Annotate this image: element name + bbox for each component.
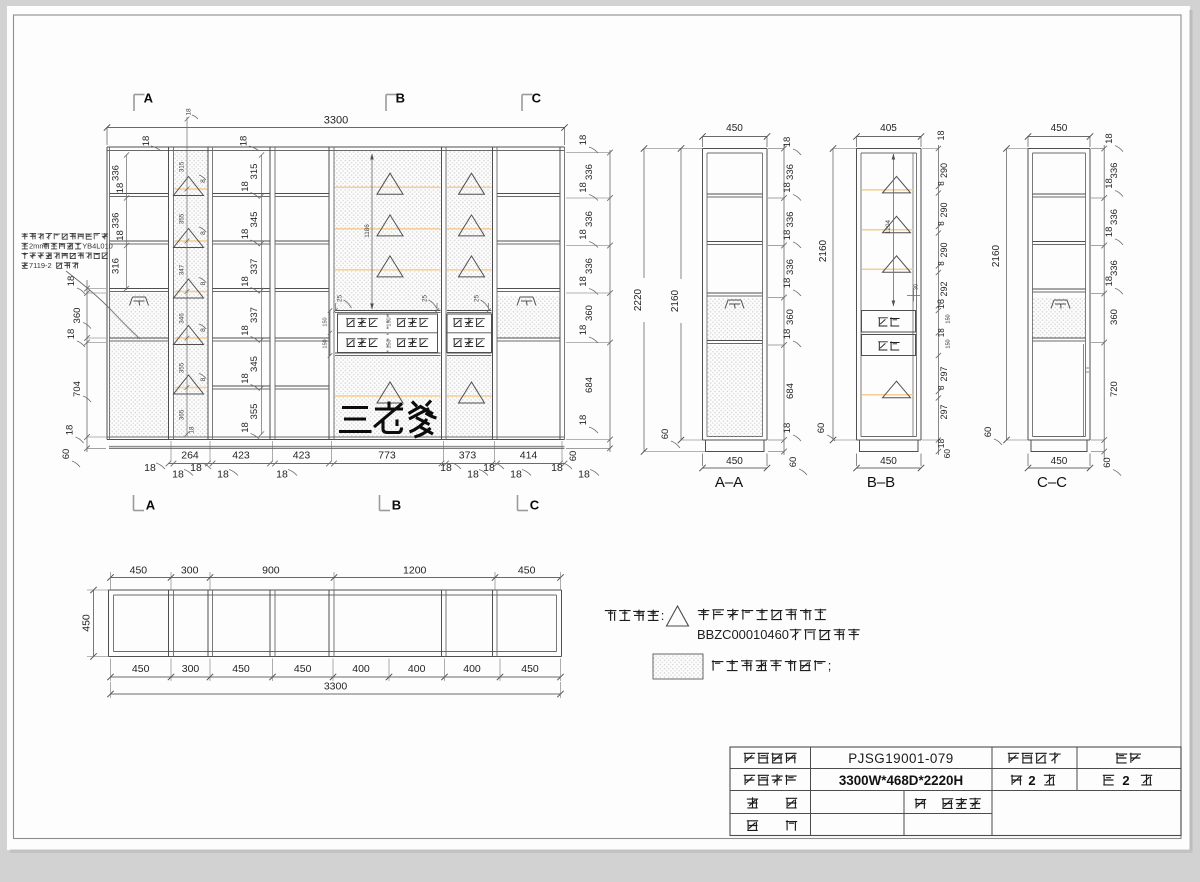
svg-text:18: 18	[578, 229, 589, 240]
svg-text:336: 336	[785, 212, 796, 228]
svg-text:2: 2	[1122, 773, 1129, 788]
svg-text:18: 18	[782, 137, 793, 148]
svg-text:3300: 3300	[324, 115, 348, 127]
svg-text:720: 720	[1109, 381, 1120, 397]
svg-text:423: 423	[232, 450, 250, 462]
svg-text:18: 18	[239, 136, 250, 147]
svg-text:60: 60	[568, 451, 579, 462]
svg-text:18: 18	[144, 462, 156, 474]
svg-text:8: 8	[937, 181, 946, 186]
svg-text:8: 8	[200, 377, 207, 381]
svg-text:450: 450	[1051, 456, 1068, 467]
svg-text:30: 30	[914, 284, 920, 290]
svg-text:1204: 1204	[885, 220, 892, 235]
svg-text:8: 8	[937, 385, 946, 390]
svg-text:773: 773	[378, 450, 396, 462]
svg-text:450: 450	[294, 663, 312, 675]
svg-text:60: 60	[1102, 457, 1113, 468]
svg-text:290: 290	[939, 242, 949, 257]
svg-text:18: 18	[186, 108, 193, 116]
svg-text:8: 8	[200, 231, 207, 235]
svg-text:18: 18	[578, 415, 589, 426]
svg-text:60: 60	[788, 457, 799, 468]
svg-text:400: 400	[463, 663, 481, 675]
svg-text:336: 336	[1109, 209, 1120, 225]
svg-text:18: 18	[936, 130, 946, 140]
svg-text:18: 18	[190, 462, 202, 474]
svg-text:360: 360	[1109, 309, 1120, 325]
svg-text:8: 8	[937, 261, 946, 266]
svg-text:336: 336	[1109, 163, 1120, 179]
svg-text:450: 450	[132, 663, 150, 675]
svg-text:450: 450	[81, 614, 93, 632]
svg-text:18: 18	[782, 278, 793, 289]
svg-text:704: 704	[72, 381, 83, 397]
svg-text:18: 18	[172, 469, 184, 481]
svg-text:60: 60	[942, 449, 952, 459]
svg-text:25: 25	[474, 295, 481, 303]
svg-text:336: 336	[584, 164, 595, 180]
svg-text:315: 315	[249, 164, 260, 180]
svg-text:A: A	[146, 498, 156, 513]
svg-text:YB4L010: YB4L010	[82, 242, 113, 251]
svg-text:18: 18	[240, 422, 251, 433]
svg-text:B–B: B–B	[867, 474, 895, 491]
svg-text:290: 290	[939, 202, 949, 217]
svg-text:336: 336	[785, 164, 796, 180]
svg-text:18: 18	[66, 329, 77, 340]
svg-text:355: 355	[249, 404, 260, 420]
svg-text:2160: 2160	[991, 244, 1002, 267]
svg-text:405: 405	[880, 123, 897, 134]
svg-text:18: 18	[240, 181, 251, 192]
svg-text:25: 25	[422, 295, 429, 303]
svg-text:2160: 2160	[670, 289, 681, 312]
svg-text:345: 345	[249, 212, 260, 228]
svg-text:150: 150	[946, 314, 952, 323]
svg-text:450: 450	[232, 663, 250, 675]
svg-text:347: 347	[179, 264, 186, 275]
svg-text:18: 18	[141, 136, 152, 147]
svg-text:450: 450	[880, 456, 897, 467]
svg-text:300: 300	[181, 565, 199, 577]
svg-text:414: 414	[520, 450, 538, 462]
svg-text:337: 337	[249, 307, 260, 323]
svg-text:25: 25	[337, 295, 344, 303]
svg-text:360: 360	[72, 308, 83, 324]
svg-text:60: 60	[660, 429, 671, 440]
svg-text:2mm: 2mm	[29, 242, 46, 251]
svg-text:150: 150	[387, 339, 393, 348]
svg-text:400: 400	[352, 663, 370, 675]
svg-text:292: 292	[939, 281, 949, 296]
svg-text:60: 60	[61, 449, 72, 460]
svg-text:450: 450	[1051, 123, 1068, 134]
svg-text::: :	[661, 608, 665, 623]
svg-text:PJSG19001-079: PJSG19001-079	[848, 751, 954, 766]
svg-text:2: 2	[1028, 773, 1035, 788]
svg-text:1200: 1200	[403, 565, 427, 577]
svg-text:3300W*468D*2220H: 3300W*468D*2220H	[839, 773, 963, 788]
svg-text:336: 336	[785, 259, 796, 275]
svg-text:18: 18	[65, 425, 76, 436]
svg-text:150: 150	[946, 339, 952, 348]
svg-text:2220: 2220	[633, 288, 644, 311]
svg-text:18: 18	[66, 276, 77, 287]
svg-text:8: 8	[200, 179, 207, 183]
svg-text:18: 18	[578, 135, 589, 146]
svg-text:60: 60	[983, 427, 994, 438]
svg-text:8: 8	[937, 221, 946, 226]
svg-text:18: 18	[1104, 178, 1115, 189]
svg-text:297: 297	[939, 404, 949, 419]
svg-text:B: B	[396, 91, 405, 106]
svg-text:150: 150	[387, 317, 393, 326]
svg-text:290: 290	[939, 163, 949, 178]
svg-text:360: 360	[584, 305, 595, 321]
svg-text:18: 18	[578, 276, 589, 287]
svg-text:18: 18	[1104, 133, 1115, 144]
svg-text:345: 345	[249, 356, 260, 372]
svg-text:18: 18	[782, 329, 793, 340]
svg-text:18: 18	[510, 469, 522, 481]
svg-text:18: 18	[467, 469, 479, 481]
svg-text:336: 336	[584, 258, 595, 274]
svg-text:18: 18	[1104, 276, 1115, 287]
svg-text:18: 18	[276, 469, 288, 481]
svg-text:336: 336	[111, 213, 122, 229]
svg-text:18: 18	[782, 423, 793, 434]
svg-text:336: 336	[111, 165, 122, 181]
svg-text:1186: 1186	[364, 224, 371, 238]
svg-text:684: 684	[584, 377, 595, 393]
svg-text:18: 18	[240, 325, 251, 336]
svg-text:336: 336	[1109, 260, 1120, 276]
svg-text:365: 365	[179, 409, 186, 420]
svg-text:18: 18	[189, 426, 196, 434]
svg-text:18: 18	[240, 276, 251, 287]
svg-text:373: 373	[459, 450, 477, 462]
svg-text:297: 297	[939, 366, 949, 381]
svg-text:18: 18	[115, 183, 126, 194]
svg-text:150: 150	[323, 339, 329, 348]
svg-text:315: 315	[179, 161, 186, 172]
svg-text:7119-2: 7119-2	[29, 261, 52, 270]
svg-text:8: 8	[200, 281, 207, 285]
svg-text:18: 18	[578, 182, 589, 193]
svg-text:18: 18	[217, 469, 229, 481]
svg-text:8: 8	[200, 328, 207, 332]
svg-text:450: 450	[726, 456, 743, 467]
svg-text:18: 18	[782, 230, 793, 241]
svg-text:;: ;	[828, 658, 832, 673]
svg-text:684: 684	[785, 383, 796, 399]
svg-text:346: 346	[179, 313, 186, 324]
svg-text:264: 264	[181, 450, 199, 462]
svg-text:60: 60	[816, 423, 827, 434]
svg-text:18: 18	[115, 230, 126, 241]
svg-text:A–A: A–A	[715, 474, 743, 491]
svg-text:3300: 3300	[324, 681, 348, 693]
svg-text:400: 400	[408, 663, 426, 675]
svg-text:336: 336	[584, 211, 595, 227]
svg-text:450: 450	[130, 565, 148, 577]
svg-text:450: 450	[726, 123, 743, 134]
svg-text:C: C	[532, 91, 542, 106]
svg-text:18: 18	[551, 462, 563, 474]
svg-text:355: 355	[179, 213, 186, 224]
svg-text:450: 450	[518, 565, 536, 577]
svg-text:337: 337	[249, 259, 260, 275]
svg-text:B: B	[392, 498, 401, 513]
svg-text:18: 18	[937, 328, 946, 337]
svg-text:18: 18	[440, 462, 452, 474]
svg-text:18: 18	[483, 462, 495, 474]
svg-text:18: 18	[936, 299, 946, 309]
svg-text:18: 18	[578, 325, 589, 336]
svg-text:18: 18	[240, 373, 251, 384]
svg-text:355: 355	[179, 362, 186, 373]
svg-text:150: 150	[323, 317, 329, 326]
svg-text:450: 450	[521, 663, 539, 675]
svg-text:18: 18	[936, 439, 946, 449]
svg-text:C: C	[530, 498, 540, 513]
svg-text:18: 18	[578, 469, 590, 481]
svg-text:360: 360	[785, 309, 796, 325]
svg-text:18: 18	[1104, 227, 1115, 238]
svg-text:316: 316	[111, 258, 122, 274]
svg-text:900: 900	[262, 565, 280, 577]
svg-text:BBZC00010460: BBZC00010460	[697, 627, 789, 642]
svg-text:423: 423	[293, 450, 311, 462]
svg-text:2160: 2160	[818, 239, 829, 262]
svg-text:300: 300	[182, 663, 200, 675]
svg-text:18: 18	[240, 229, 251, 240]
svg-text:18: 18	[782, 182, 793, 193]
svg-text:C–C: C–C	[1037, 474, 1067, 491]
svg-text:A: A	[144, 91, 154, 106]
